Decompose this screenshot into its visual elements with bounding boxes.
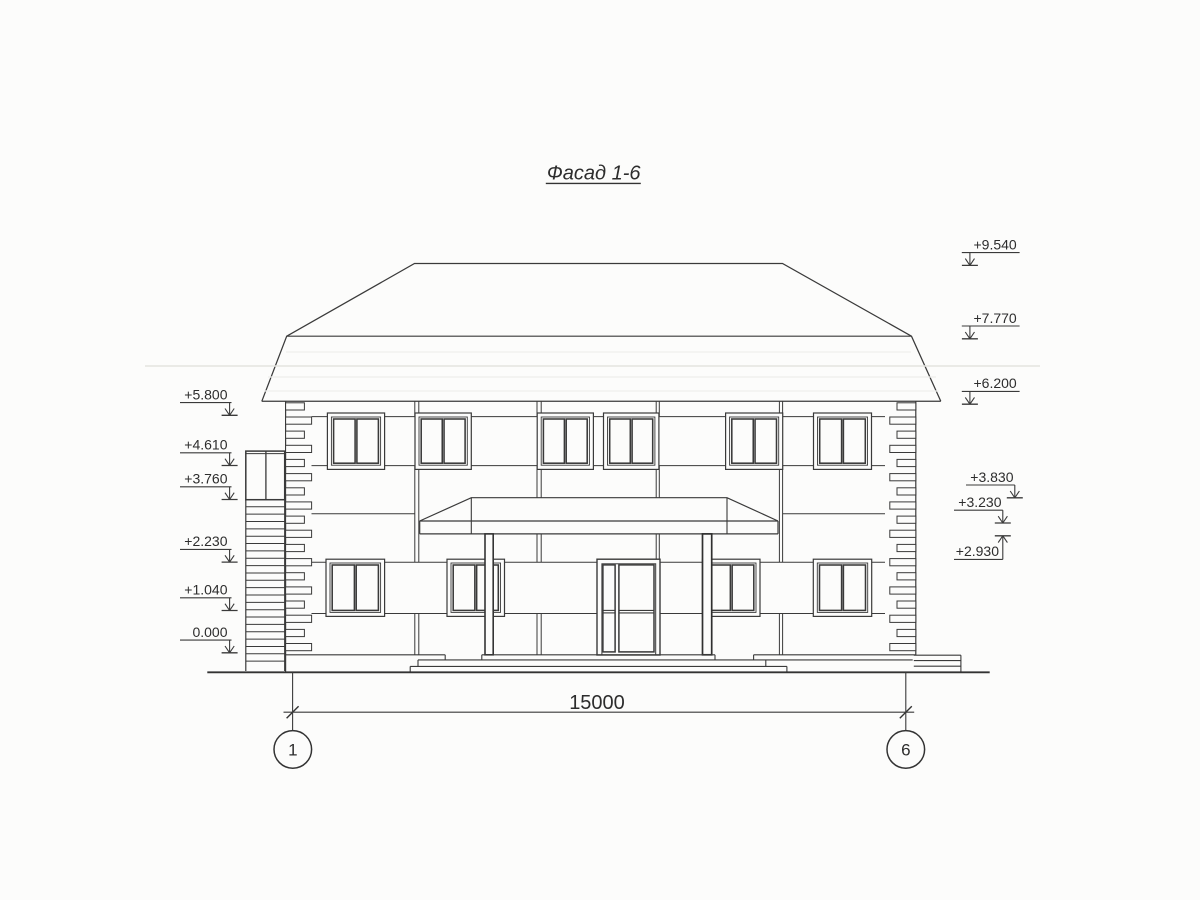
svg-text:+3.760: +3.760 <box>184 471 227 487</box>
svg-text:1: 1 <box>288 741 297 760</box>
svg-text:0.000: 0.000 <box>192 624 227 640</box>
svg-text:+2.230: +2.230 <box>184 533 227 549</box>
svg-text:+7.770: +7.770 <box>974 310 1017 326</box>
svg-text:+4.610: +4.610 <box>184 437 227 453</box>
svg-text:+3.230: +3.230 <box>958 494 1001 510</box>
svg-text:+6.200: +6.200 <box>974 375 1017 391</box>
svg-text:+5.800: +5.800 <box>184 386 227 402</box>
svg-text:+9.540: +9.540 <box>974 236 1017 252</box>
svg-text:+3.830: +3.830 <box>970 469 1013 485</box>
svg-text:+2.930: +2.930 <box>956 543 999 559</box>
svg-text:6: 6 <box>901 741 910 760</box>
svg-text:Фасад 1-6: Фасад 1-6 <box>547 162 642 184</box>
svg-text:+1.040: +1.040 <box>184 582 227 598</box>
svg-text:15000: 15000 <box>569 692 625 714</box>
